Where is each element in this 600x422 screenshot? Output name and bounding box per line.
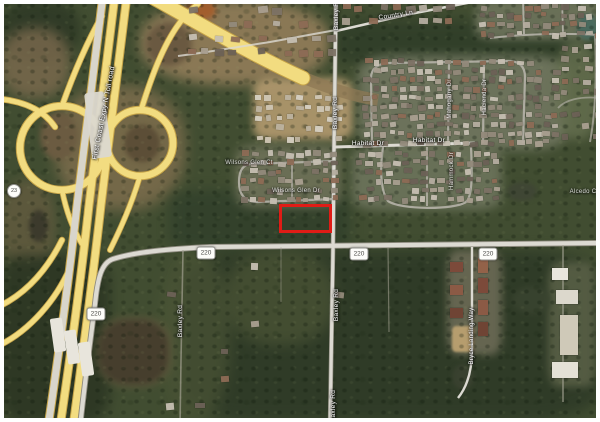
route-shield-220: 220: [197, 247, 216, 260]
street-label-alcedo: Alcedo Ct: [570, 189, 599, 195]
frame-top: [0, 0, 600, 4]
route-shield-220: 220: [87, 308, 106, 321]
road-label-habitat-2: Habitat Dr: [413, 138, 445, 145]
street-label-wilsons-dr: Wilsons Glen Dr: [272, 188, 320, 194]
road-label-baxley-3: Baxley Rd: [334, 289, 341, 321]
route-shield-23: 23: [7, 184, 21, 198]
street-label-wilsons-ct: Wilsons Glen Ct: [225, 160, 273, 166]
satellite-map[interactable]: First Coast Expy N Toll road Baxley Rd B…: [0, 0, 600, 422]
frame-left: [0, 0, 4, 422]
street-label-hacienda: Hacienda Dr: [482, 79, 488, 116]
road-label-habitat-1: Habitat Dr: [352, 141, 384, 148]
road-label-bryce: Bryce Landing Way: [469, 308, 475, 365]
road-label-baxley-2: Baxley Rd: [333, 97, 340, 129]
frame-right: [596, 0, 600, 422]
route-shield-220: 220: [479, 248, 498, 261]
street-label-mahogany: Mahogany Dr: [447, 79, 453, 118]
road-label-baxley-sw: Baxley Rd: [178, 305, 185, 337]
screenshot: First Coast Expy N Toll road Baxley Rd B…: [0, 0, 600, 422]
route-shield-220: 220: [350, 248, 369, 261]
parcel-highlight-rectangle: [279, 204, 332, 233]
frame-bottom: [0, 418, 600, 422]
road-label-baxley-1: Baxley Rd: [334, 0, 341, 30]
street-label-hammock: Hammock Dr: [449, 152, 455, 190]
